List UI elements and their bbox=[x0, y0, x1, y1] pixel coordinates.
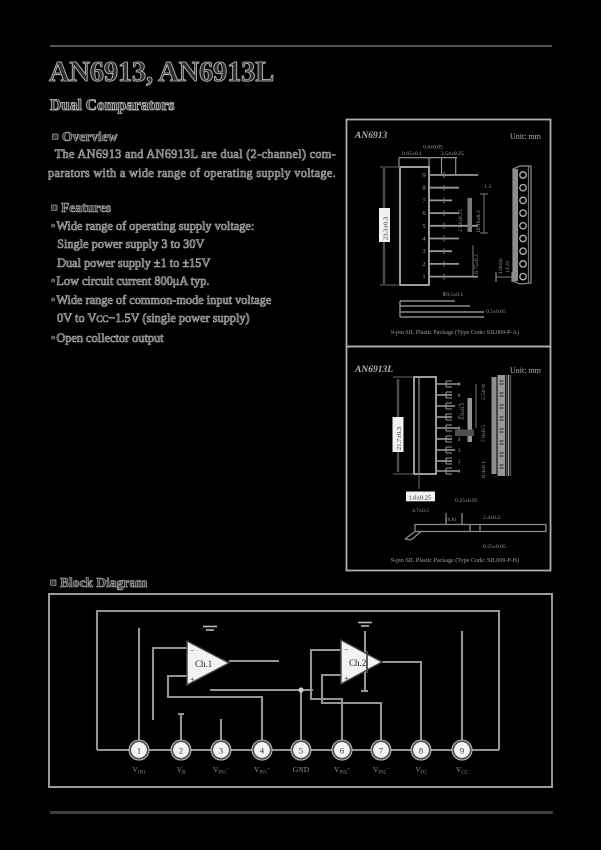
svg-text:+: + bbox=[344, 674, 349, 683]
svg-text:7: 7 bbox=[422, 197, 426, 204]
svg-text:VIN2−: VIN2− bbox=[373, 765, 389, 776]
svg-text:(0.8): (0.8) bbox=[446, 516, 456, 523]
svg-text:1.3: 1.3 bbox=[484, 184, 491, 190]
svg-text:2: 2 bbox=[179, 746, 183, 756]
svg-text:0.4±0.05: 0.4±0.05 bbox=[423, 145, 443, 151]
svg-text:8: 8 bbox=[458, 394, 461, 399]
svg-text:6: 6 bbox=[422, 210, 426, 217]
svg-text:21.7±0.3: 21.7±0.3 bbox=[396, 427, 403, 450]
svg-text:8: 8 bbox=[419, 746, 423, 756]
svg-text:−: − bbox=[344, 645, 349, 654]
svg-text:7: 7 bbox=[379, 746, 383, 756]
svg-text:(1.3): (1.3) bbox=[504, 261, 511, 272]
svg-text:AN6913L: AN6913L bbox=[354, 365, 393, 375]
svg-text:0.5±0.05: 0.5±0.05 bbox=[486, 309, 506, 315]
svg-text:4.7±0.5: 4.7±0.5 bbox=[412, 508, 429, 514]
svg-text:2.54×8: 2.54×8 bbox=[481, 384, 487, 400]
svg-text:VB: VB bbox=[177, 765, 186, 776]
svg-text:9-pin SIL Plastic Package (Typ: 9-pin SIL Plastic Package (Type Code: SI… bbox=[391, 329, 519, 336]
svg-text:6: 6 bbox=[340, 746, 344, 756]
svg-text:VO2: VO2 bbox=[415, 765, 427, 776]
svg-text:4: 4 bbox=[458, 438, 461, 443]
svg-text:1: 1 bbox=[458, 470, 461, 475]
svg-text:Ⅱ 0.5±0.1: Ⅱ 0.5±0.1 bbox=[443, 292, 463, 298]
svg-text:VIN1+: VIN1+ bbox=[254, 765, 270, 776]
svg-text:3: 3 bbox=[458, 449, 461, 454]
svg-text:Unit: mm: Unit: mm bbox=[510, 132, 542, 141]
svg-text:VCC: VCC bbox=[456, 765, 469, 776]
svg-text:0.65±0.1: 0.65±0.1 bbox=[402, 151, 422, 157]
svg-text:0.25±0.05: 0.25±0.05 bbox=[455, 498, 478, 504]
svg-text:0.25±0.05: 0.25±0.05 bbox=[483, 544, 506, 550]
svg-text:0.75±0.2: 0.75±0.2 bbox=[474, 254, 480, 274]
svg-text:GND: GND bbox=[293, 765, 310, 774]
svg-text:5: 5 bbox=[422, 223, 425, 230]
svg-text:23.3±0.3: 23.3±0.3 bbox=[383, 217, 390, 240]
svg-text:5: 5 bbox=[299, 746, 303, 756]
svg-text:−: − bbox=[190, 646, 195, 655]
svg-text:1: 1 bbox=[422, 274, 425, 281]
svg-text:VIN2+: VIN2+ bbox=[334, 765, 350, 776]
svg-text:9: 9 bbox=[458, 383, 461, 388]
svg-text:Ch.1: Ch.1 bbox=[195, 659, 212, 669]
svg-text:Unit: mm: Unit: mm bbox=[510, 366, 542, 375]
svg-text:VIN1−: VIN1− bbox=[213, 765, 229, 776]
svg-text:9-pin SIL Plastic Package (Typ: 9-pin SIL Plastic Package (Type Code: SI… bbox=[391, 557, 519, 564]
svg-text:AN6913: AN6913 bbox=[354, 131, 387, 141]
svg-text:2: 2 bbox=[458, 460, 461, 465]
svg-text:1.0min: 1.0min bbox=[498, 258, 504, 274]
svg-text:1: 1 bbox=[137, 746, 141, 756]
svg-text:2.54±0.25: 2.54±0.25 bbox=[441, 151, 464, 157]
svg-text:10.16±0.3: 10.16±0.3 bbox=[476, 210, 482, 233]
svg-text:VIN1: VIN1 bbox=[132, 765, 146, 776]
svg-text:2.4±0.2: 2.4±0.2 bbox=[483, 515, 500, 521]
svg-text:3.8±0.3: 3.8±0.3 bbox=[460, 403, 466, 420]
svg-text:9: 9 bbox=[422, 172, 425, 179]
svg-text:0.4±0.1: 0.4±0.1 bbox=[481, 461, 487, 478]
svg-text:3: 3 bbox=[219, 746, 223, 756]
svg-text:8: 8 bbox=[422, 185, 425, 192]
svg-text:4: 4 bbox=[422, 236, 426, 243]
svg-text:2: 2 bbox=[422, 261, 425, 268]
svg-text:2.54±0.25: 2.54±0.25 bbox=[458, 209, 464, 232]
svg-text:7.0±0.5: 7.0±0.5 bbox=[481, 425, 487, 442]
svg-text:Ch.2: Ch.2 bbox=[349, 658, 366, 668]
svg-text:+: + bbox=[190, 675, 195, 684]
svg-text:1.0±0.25: 1.0±0.25 bbox=[409, 494, 432, 501]
svg-text:3: 3 bbox=[422, 248, 425, 255]
svg-text:9: 9 bbox=[460, 746, 464, 756]
